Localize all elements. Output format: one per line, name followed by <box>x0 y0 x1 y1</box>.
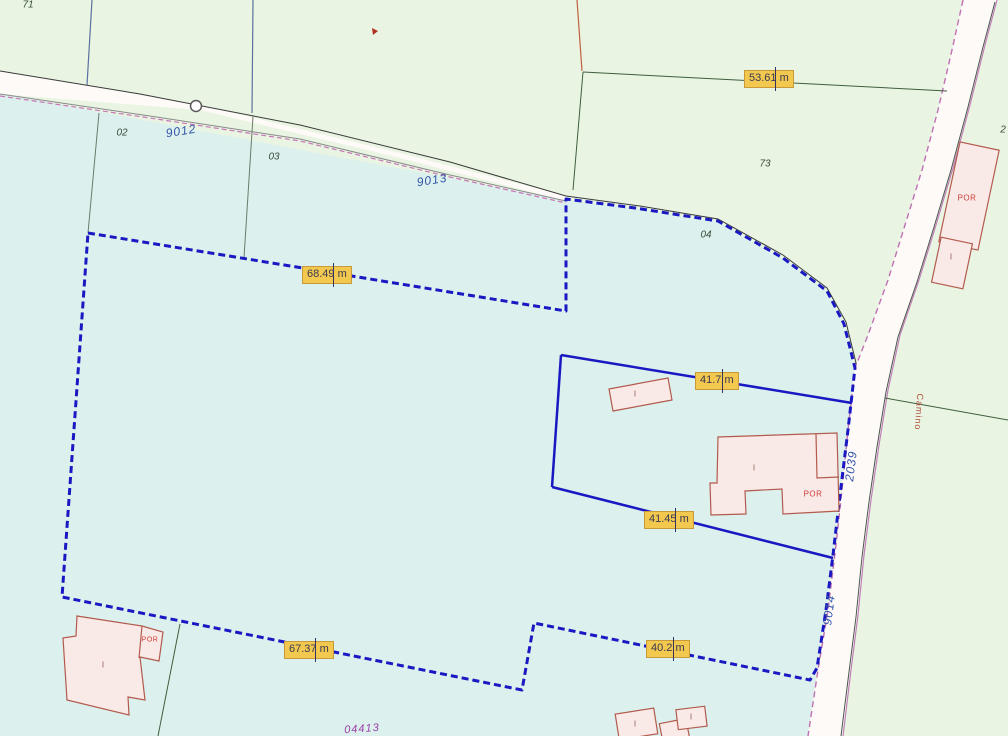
road-point-marker <box>191 101 202 112</box>
measurement-label: 41.7 m <box>695 372 739 390</box>
measurement-label: 41.45 m <box>644 511 694 529</box>
building-bottom-3[interactable] <box>676 706 707 729</box>
measurement-label: 53.61 m <box>744 70 794 88</box>
measurement-label: 67.37 m <box>284 641 334 659</box>
measurement-label: 68.49 m <box>302 266 352 284</box>
cadastral-map-canvas[interactable]: 53.61 m 52.91 m 46.83 m 68.49 m 41.7 m 5… <box>0 0 1008 736</box>
measurement-label: 40.2 m <box>646 640 690 658</box>
